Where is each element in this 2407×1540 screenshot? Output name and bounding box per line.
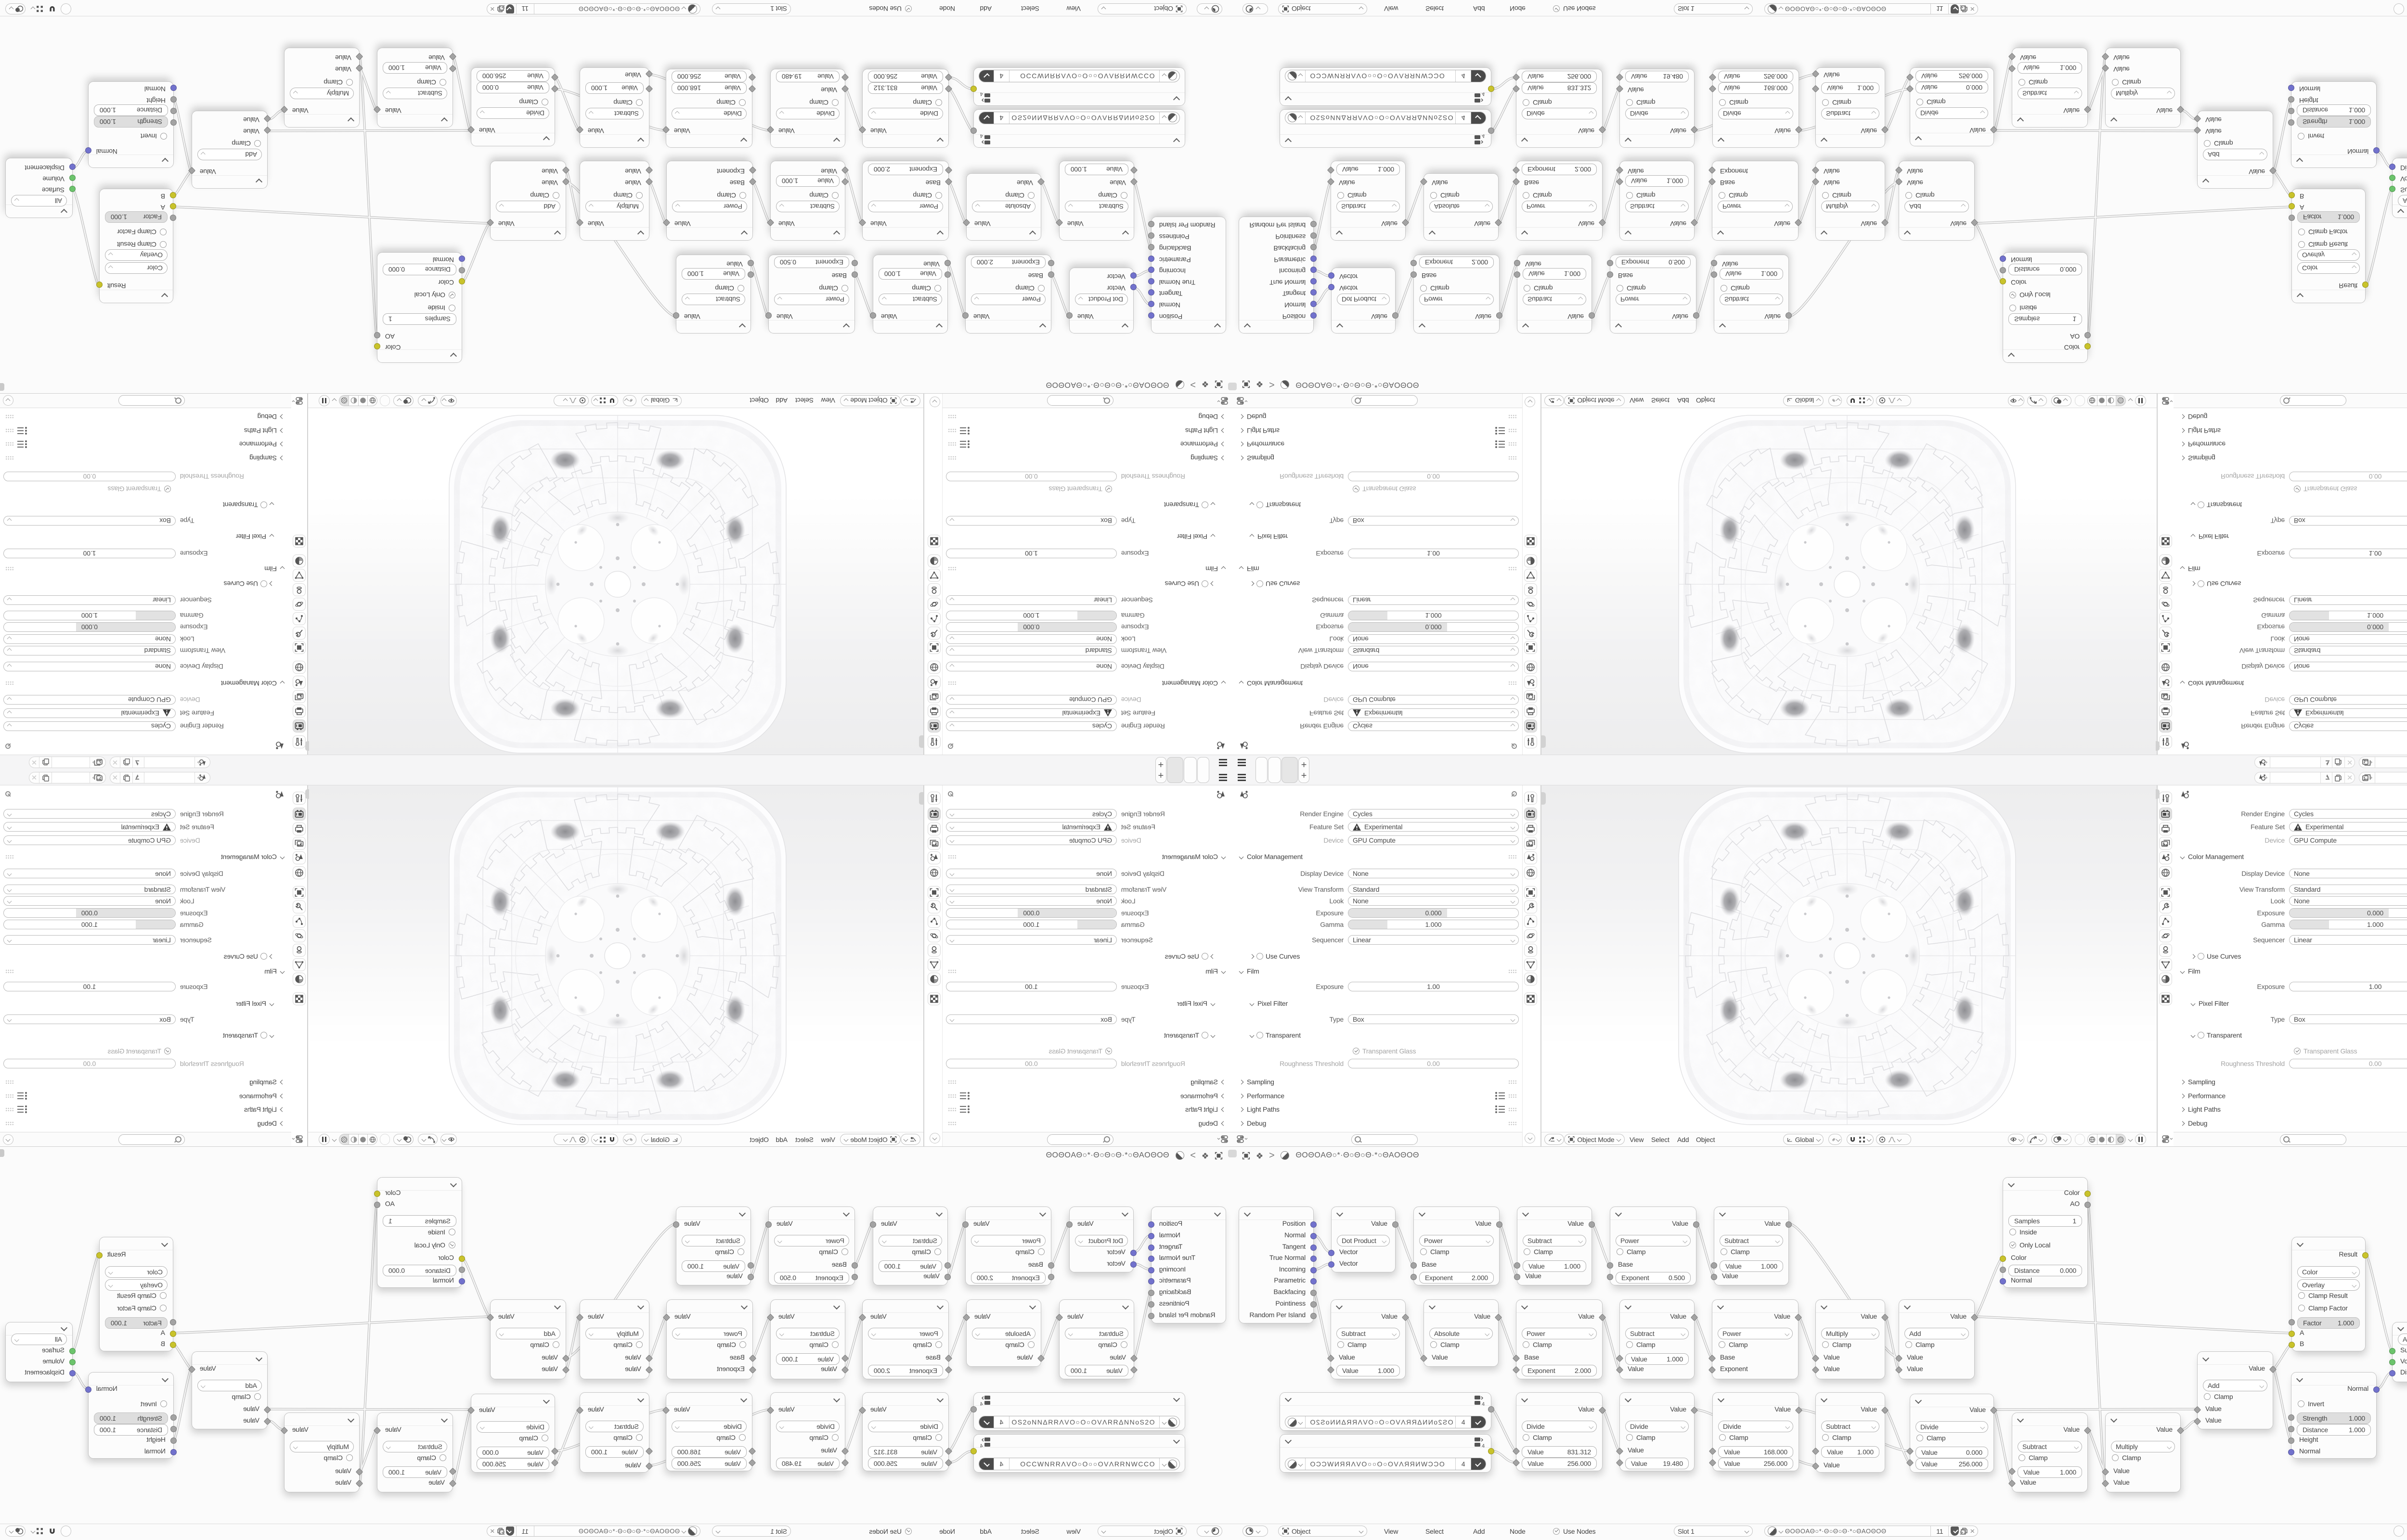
svg-text:4: 4 bbox=[1482, 1401, 1485, 1407]
svg-text:4: 4 bbox=[980, 1401, 983, 1407]
svg-text:4: 4 bbox=[1482, 1443, 1485, 1449]
svg-text:4: 4 bbox=[1482, 91, 1485, 97]
svg-text:4: 4 bbox=[980, 91, 983, 97]
svg-text:4: 4 bbox=[1482, 133, 1485, 139]
svg-text:4: 4 bbox=[980, 133, 983, 139]
svg-text:4: 4 bbox=[980, 1443, 983, 1449]
